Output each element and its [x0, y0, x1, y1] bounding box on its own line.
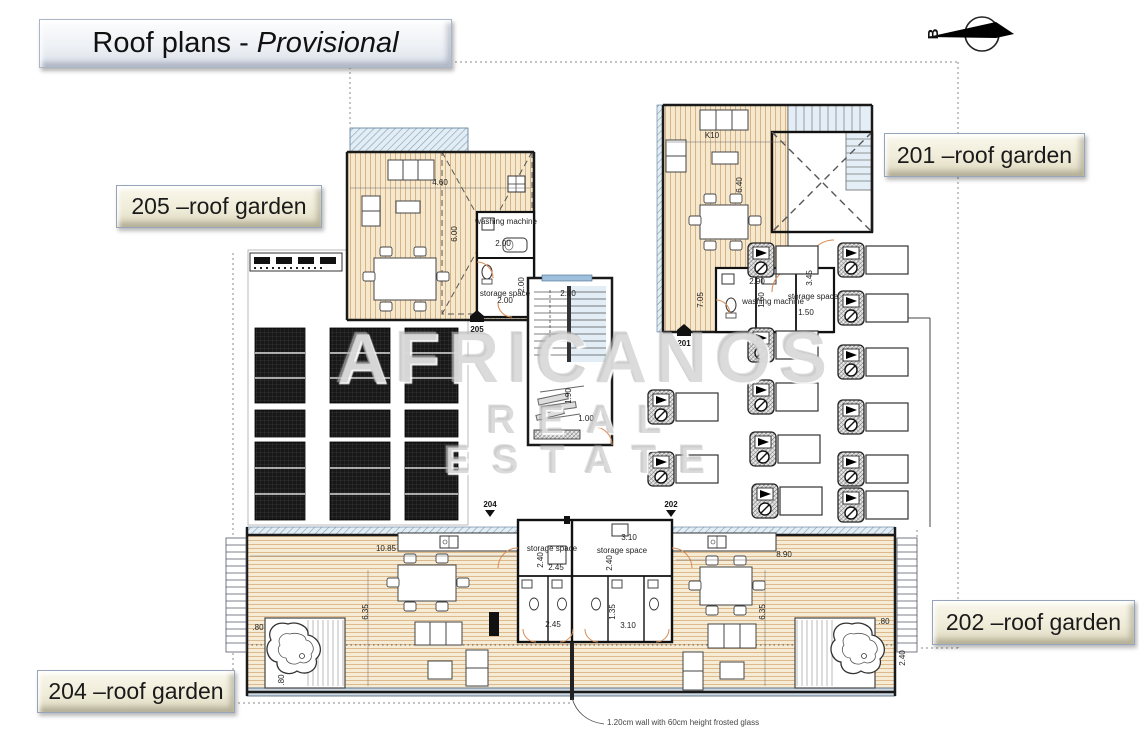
- unit-marker-label: 202: [664, 500, 678, 509]
- dimension-label: .80: [277, 674, 286, 686]
- entry-arrow-icon: [666, 510, 676, 517]
- title-prefix: Roof plans -: [92, 27, 248, 60]
- dimension-label: 6.40: [735, 177, 744, 193]
- dimension-label: 1.00: [578, 414, 594, 423]
- dimension-label: 2.45: [548, 563, 564, 572]
- dimension-label: 6.35: [361, 604, 370, 620]
- dimension-label: 2.40: [560, 289, 576, 298]
- entry-arrow-icon: [485, 510, 495, 517]
- dimension-label: 1.90: [564, 388, 573, 404]
- roof-plan-page: 4.606.002.002.002.002.401.901.00K106.407…: [0, 0, 1139, 737]
- page-title: Roof plans - Provisional: [39, 19, 452, 68]
- unit-marker-204: 204: [483, 500, 497, 517]
- dimension-label: storage space: [527, 544, 578, 553]
- stair-core: [528, 275, 612, 445]
- dimension-label: 2.40: [536, 552, 545, 568]
- side-planter-left: [226, 538, 246, 652]
- dimension-label: 1.35: [608, 604, 617, 620]
- dimension-label: 3.10: [621, 533, 637, 542]
- unit-marker-label: 201: [677, 339, 691, 348]
- label-202-text: 202 –roof garden: [946, 609, 1121, 636]
- side-planter-right: [897, 538, 917, 652]
- dimension-label: storage space: [480, 289, 531, 298]
- solar-panels: [255, 328, 458, 520]
- label-204-roof-garden: 204 –roof garden: [37, 670, 235, 713]
- dimension-label: storage space: [597, 546, 648, 555]
- label-202-roof-garden: 202 –roof garden: [932, 600, 1135, 645]
- dimension-label: storage space: [788, 292, 839, 301]
- unit-marker-202: 202: [664, 500, 678, 517]
- dimension-label: 2.90: [749, 277, 765, 286]
- dimension-label: .80: [252, 623, 264, 632]
- dimension-label: 1.50: [798, 308, 814, 317]
- unit-marker-label: 204: [483, 500, 497, 509]
- dimension-label: washing machine: [474, 217, 537, 226]
- dimension-label: 4.60: [432, 178, 448, 187]
- dimension-label: 2.40: [898, 650, 907, 666]
- unit-marker-label: 205: [470, 325, 484, 334]
- north-letter: B: [925, 28, 942, 39]
- jacuzzi-right: [795, 618, 884, 688]
- label-205-text: 205 –roof garden: [131, 193, 306, 220]
- dimension-label: 3.45: [805, 270, 814, 286]
- dimension-label: 8.90: [776, 550, 792, 559]
- label-201-text: 201 –roof garden: [897, 142, 1072, 169]
- dimension-label: 2.00: [495, 239, 511, 248]
- center-service-rooms: [489, 516, 692, 642]
- label-205-roof-garden: 205 –roof garden: [116, 185, 322, 228]
- label-201-roof-garden: 201 –roof garden: [884, 133, 1085, 177]
- dimension-label: .80: [878, 617, 890, 626]
- dimension-label: 7.05: [696, 292, 705, 308]
- note-leader-line: [572, 698, 604, 724]
- dimension-label: 2.45: [545, 620, 561, 629]
- title-emphasis: Provisional: [257, 27, 399, 60]
- north-arrow: B: [920, 10, 1015, 58]
- frosted-glass-note: 1.20cm wall with 60cm height frosted gla…: [607, 718, 759, 727]
- label-204-text: 204 –roof garden: [48, 678, 223, 705]
- dimension-label: 6.35: [758, 604, 767, 620]
- dimension-label: 10.85: [376, 544, 397, 553]
- dimension-label: 6.00: [450, 226, 459, 242]
- dimension-label: K10: [705, 131, 720, 140]
- dimension-label: 3.10: [620, 621, 636, 630]
- dimension-label: 2.40: [605, 555, 614, 571]
